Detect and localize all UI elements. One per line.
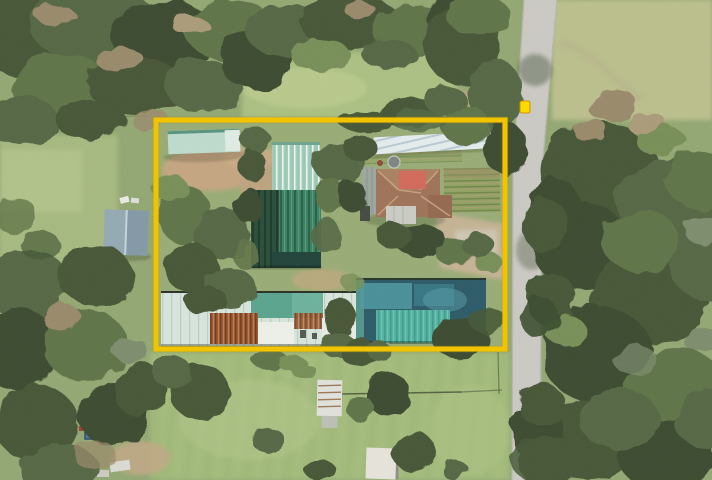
photo-grain	[0, 0, 712, 480]
road-marker	[520, 101, 530, 113]
aerial-property-photo[interactable]	[0, 0, 712, 480]
aerial-scene	[0, 0, 712, 480]
